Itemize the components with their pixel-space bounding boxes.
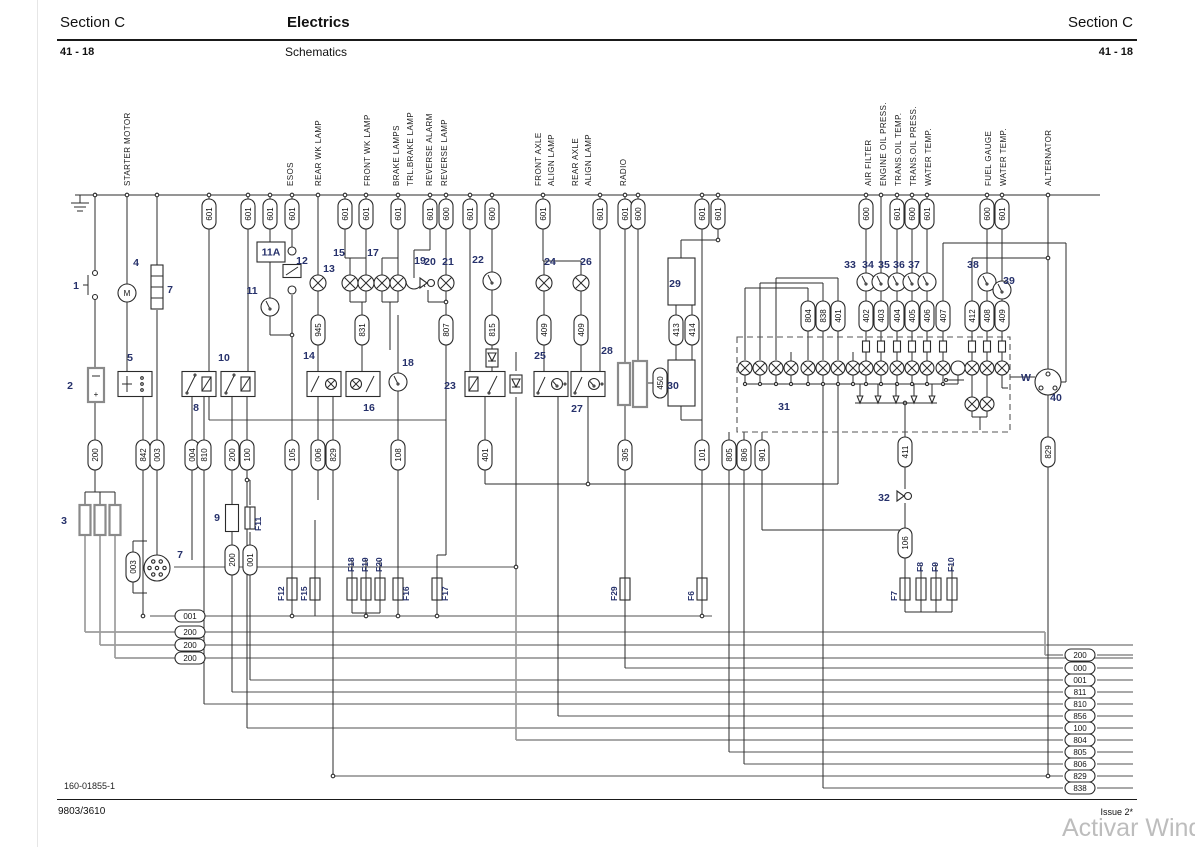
junction-dot — [290, 193, 294, 197]
component-ref: 16 — [363, 402, 375, 414]
connector-pin — [159, 573, 162, 576]
junction-dot — [821, 382, 824, 385]
component-ref: 36 — [893, 259, 905, 271]
wire-number: 600 — [862, 207, 871, 221]
connector-pin — [863, 341, 870, 352]
battery-plus: + — [94, 390, 99, 399]
wire-number: 829 — [1073, 772, 1087, 781]
relay-icon — [194, 374, 196, 376]
switch-icon — [93, 295, 98, 300]
connector-pin — [984, 341, 991, 352]
footer-part-number: 9803/3610 — [58, 806, 105, 817]
relay-icon — [225, 392, 227, 394]
junction-dot — [716, 193, 720, 197]
wire-number: 601 — [596, 207, 605, 221]
resistor-bank-icon — [95, 505, 106, 535]
wire-number: 001 — [183, 612, 197, 621]
wire-number: 806 — [1073, 760, 1087, 769]
component-ref: 34 — [862, 259, 874, 271]
circuit-label: WATER TEMP. — [924, 128, 933, 186]
junction-dot — [268, 193, 272, 197]
wire-number: 100 — [243, 448, 252, 462]
circuit-label: ALTERNATOR — [1044, 130, 1053, 186]
wire-number: 810 — [1073, 700, 1087, 709]
sender-icon — [865, 283, 867, 285]
component-ref: 17 — [367, 247, 379, 259]
junction-dot — [941, 382, 944, 385]
connector-pin — [999, 341, 1006, 352]
junction-dot — [985, 193, 989, 197]
wire-number: 600 — [488, 207, 497, 221]
junction-dot — [207, 193, 211, 197]
connector-pin — [155, 566, 158, 569]
alternator-icon — [1046, 372, 1050, 376]
wire-number: 408 — [983, 309, 992, 323]
junction-dot — [364, 614, 368, 618]
junction-dot — [125, 193, 129, 197]
motor-letter: M — [124, 289, 131, 298]
junction-dot — [468, 193, 472, 197]
wire-number: 001 — [1073, 676, 1087, 685]
wire-number: 404 — [893, 309, 902, 323]
wire-number: 805 — [1073, 748, 1087, 757]
junction-dot — [155, 193, 159, 197]
wire-number: 601 — [998, 207, 1007, 221]
fuse-label: F6 — [686, 591, 696, 601]
circuit-label: WATER TEMP. — [999, 128, 1008, 186]
component-ref: 39 — [1003, 275, 1015, 287]
sender-icon — [986, 283, 988, 285]
junction-dot — [700, 193, 704, 197]
wire-number: 804 — [804, 309, 813, 323]
sender-icon — [896, 283, 898, 285]
component-ref: 23 — [444, 380, 456, 392]
junction-dot — [910, 193, 914, 197]
connector-pin — [878, 341, 885, 352]
fuse-label: F12 — [276, 586, 286, 601]
sender-icon — [872, 273, 890, 291]
indicator-icon — [951, 361, 965, 375]
component-ref: 29 — [669, 278, 681, 290]
switch-gauge-box — [537, 392, 539, 394]
wire-number: 601 — [266, 207, 275, 221]
flasher-icon — [288, 247, 296, 255]
junction-dot — [743, 382, 746, 385]
wire-number: 405 — [908, 309, 917, 323]
manual-page: Section C Electrics Section C 41 - 18 Sc… — [0, 0, 1195, 847]
circuit-label: ALIGN LAMP — [547, 134, 556, 186]
connector-pin — [969, 341, 976, 352]
circuit-label: REAR WK LAMP — [314, 120, 323, 186]
terminal-arrow — [857, 396, 863, 403]
component-ref: 33 — [844, 259, 856, 271]
fuse-label: F20 — [374, 557, 384, 572]
junction-dot — [586, 482, 590, 486]
wire-number: 100 — [1073, 724, 1087, 733]
connector-pin — [148, 566, 151, 569]
wire-number: 001 — [246, 553, 255, 567]
wire-number: 601 — [288, 207, 297, 221]
junction-dot — [925, 382, 928, 385]
component-box — [633, 361, 647, 407]
footer-doc-number: 160-01855-1 — [64, 781, 115, 791]
alternator-icon — [1039, 386, 1043, 390]
wire-number: 601 — [539, 207, 548, 221]
sender-icon — [397, 383, 399, 385]
relay-icon — [186, 392, 188, 394]
wire-number: 601 — [394, 207, 403, 221]
relay-icon — [488, 392, 490, 394]
sender-icon — [880, 283, 882, 285]
component-ref: 11A — [262, 247, 281, 259]
junction-dot — [245, 478, 249, 482]
fuse-label: F17 — [440, 586, 450, 601]
junction-dot — [774, 382, 777, 385]
connector-pin — [152, 573, 155, 576]
circuit-label: FUEL GAUGE — [984, 131, 993, 186]
fuse-label: F29 — [609, 586, 619, 601]
fuse-label: F8 — [915, 562, 925, 572]
wire-number: 831 — [358, 323, 367, 337]
wire-number: 401 — [481, 448, 490, 462]
connector-pin — [152, 560, 155, 563]
component-ref: 7 — [167, 284, 173, 296]
fuse-label: F7 — [889, 591, 899, 601]
junction-dot — [1000, 193, 1004, 197]
wire-number: 200 — [228, 553, 237, 567]
terminal-arrow — [929, 396, 935, 403]
junction-dot — [490, 193, 494, 197]
wire-number: 856 — [1073, 712, 1087, 721]
circuit-label: ENGINE OIL PRESS. — [879, 102, 888, 186]
fuse-label: F10 — [946, 557, 956, 572]
component-ref: 20 — [424, 256, 436, 268]
component-ref: 37 — [908, 259, 920, 271]
circuit-label: REVERSE ALARM — [425, 113, 434, 186]
circuit-label: FRONT AXLE — [534, 132, 543, 186]
wire-number: 810 — [200, 448, 209, 462]
component-ref: 9 — [214, 512, 220, 524]
circuit-label: AIR FILTER — [864, 139, 873, 186]
wire-number: 601 — [466, 207, 475, 221]
wire-number: 829 — [329, 448, 338, 462]
connector-pin — [940, 341, 947, 352]
wire-number: 108 — [394, 448, 403, 462]
circuit-label: BRAKE LAMPS — [392, 125, 401, 186]
junction-dot — [541, 193, 545, 197]
wire-number: 601 — [893, 207, 902, 221]
component-ref: 12 — [296, 255, 308, 267]
junction-dot — [864, 382, 867, 385]
circuit-label: RADIO — [619, 159, 628, 186]
switch-gauge-box — [574, 392, 576, 394]
buzzer-icon — [420, 278, 427, 288]
wire-number: 601 — [621, 207, 630, 221]
wire-number: 815 — [488, 323, 497, 337]
solenoid-icon — [141, 389, 144, 392]
wire-number: 601 — [426, 207, 435, 221]
junction-dot — [758, 382, 761, 385]
component-ref: 24 — [544, 256, 556, 268]
wire-number: 006 — [314, 448, 323, 462]
wire-number: 807 — [442, 323, 451, 337]
wire-number: 601 — [923, 207, 932, 221]
wire-number: 406 — [923, 309, 932, 323]
wire-number: 200 — [183, 654, 197, 663]
component-box — [618, 363, 630, 405]
activation-watermark: Activar Wind — [1062, 814, 1195, 843]
wire-number: 200 — [228, 448, 237, 462]
sender-icon — [593, 385, 595, 387]
junction-dot — [514, 565, 518, 569]
sender-icon — [552, 379, 563, 390]
wire-number: 401 — [834, 309, 843, 323]
solenoid-icon — [141, 377, 144, 380]
connector-pin — [924, 341, 931, 352]
junction-dot — [879, 382, 882, 385]
component-ref: 4 — [133, 257, 139, 269]
wire-number: 003 — [129, 560, 138, 574]
wire-number: 804 — [1073, 736, 1087, 745]
junction-dot — [1046, 193, 1050, 197]
junction-dot — [141, 614, 145, 618]
component-ref: 38 — [967, 259, 979, 271]
switch-icon — [93, 271, 98, 276]
wiring-schematic: +M11A60160160160160160160160160060160060… — [0, 0, 1195, 847]
component-ref: 14 — [303, 350, 315, 362]
resistor-bank-icon — [80, 505, 91, 535]
sender-icon — [1001, 291, 1003, 293]
junction-dot — [700, 614, 704, 618]
circuit-label: ESOS — [286, 162, 295, 186]
footer-rule — [57, 799, 1137, 800]
junction-dot — [435, 614, 439, 618]
circuit-label: REVERSE LAMP — [440, 119, 449, 186]
junction-dot — [598, 193, 602, 197]
circuit-label: TRANS.OIL PRESS. — [909, 106, 918, 186]
switch-gauge-box — [601, 383, 603, 385]
wire-number: 601 — [698, 207, 707, 221]
junction-dot — [895, 193, 899, 197]
sender-icon — [911, 283, 913, 285]
junction-dot — [1046, 256, 1050, 260]
wire-number: 601 — [714, 207, 723, 221]
wire-number: 200 — [183, 641, 197, 650]
component-ref: 2 — [67, 380, 73, 392]
wire-number: 838 — [1073, 784, 1087, 793]
component-ref: 40 — [1050, 392, 1062, 404]
component-ref: W — [1021, 372, 1031, 384]
component-ref: 32 — [878, 492, 890, 504]
sender-icon — [491, 282, 493, 284]
junction-dot — [343, 193, 347, 197]
junction-dot — [836, 382, 839, 385]
junction-dot — [428, 193, 432, 197]
component-ref: 18 — [402, 357, 414, 369]
wire-number: 600 — [983, 207, 992, 221]
junction-dot — [290, 614, 294, 618]
wire-number: 838 — [819, 309, 828, 323]
wire-number: 200 — [1073, 651, 1087, 660]
component-ref: 11 — [246, 285, 257, 297]
wire-number: 945 — [314, 323, 323, 337]
junction-dot — [636, 193, 640, 197]
component-ref: 22 — [472, 254, 484, 266]
junction-dot — [246, 193, 250, 197]
wire-number: 842 — [139, 448, 148, 462]
wire-number: 106 — [901, 536, 910, 550]
wire-number: 811 — [1074, 688, 1087, 697]
component-ref: 21 — [442, 256, 454, 268]
solenoid-icon — [141, 383, 144, 386]
connector-pin — [894, 341, 901, 352]
wire-number: 450 — [656, 376, 665, 390]
junction-dot — [925, 193, 929, 197]
wire-number: 000 — [1073, 664, 1087, 673]
sender-icon — [483, 272, 501, 290]
junction-dot — [806, 382, 809, 385]
buzzer-icon — [428, 280, 435, 287]
component-ref: 25 — [534, 350, 546, 362]
wire-number: 101 — [698, 448, 707, 462]
component-ref: 26 — [580, 256, 592, 268]
circuit-label: STARTER MOTOR — [123, 112, 132, 186]
component-ref: 30 — [667, 380, 679, 392]
component-ref: 8 — [193, 402, 199, 414]
wire-number: 407 — [939, 309, 948, 323]
wire-number: 901 — [758, 448, 767, 462]
junction-dot — [716, 238, 720, 242]
fuse-label: F18 — [346, 557, 356, 572]
component-box — [226, 505, 239, 532]
circuit-label: TRL.BRAKE LAMP — [406, 112, 415, 186]
contact-dot — [945, 379, 948, 382]
wire-number: 601 — [362, 207, 371, 221]
sender-icon — [918, 273, 936, 291]
fuse-label: F9 — [930, 562, 940, 572]
component-ref: 31 — [778, 401, 790, 413]
sender-icon — [589, 379, 600, 390]
wire-number: 409 — [540, 323, 549, 337]
wire-number: 600 — [442, 207, 451, 221]
wire-number: 004 — [188, 448, 197, 462]
fuse-label: F11 — [253, 517, 263, 531]
component-ref: 28 — [601, 345, 613, 357]
junction-dot — [864, 193, 868, 197]
junction-dot — [316, 193, 320, 197]
junction-dot — [1046, 774, 1050, 778]
component-ref: 7 — [177, 549, 183, 561]
junction-dot — [290, 333, 294, 337]
component-ref: 15 — [333, 247, 345, 259]
wire-number: 600 — [908, 207, 917, 221]
sender-icon — [269, 308, 271, 310]
junction-dot — [444, 300, 448, 304]
component-ref: 1 — [73, 280, 79, 292]
connector-pin — [909, 341, 916, 352]
wire-number: 003 — [153, 448, 162, 462]
junction-dot — [331, 774, 335, 778]
fuse-label: F16 — [401, 586, 411, 601]
buzzer-icon — [905, 493, 912, 500]
wire-number: 805 — [725, 448, 734, 462]
circuit-label: ALIGN LAMP — [584, 134, 593, 186]
wire-number: 105 — [288, 448, 297, 462]
junction-dot — [910, 382, 913, 385]
sender-icon — [389, 373, 407, 391]
wire-number: 806 — [740, 448, 749, 462]
terminal-arrow — [875, 396, 881, 403]
sender-icon — [261, 298, 279, 316]
component-ref: 5 — [127, 352, 133, 364]
wire-number: 829 — [1044, 445, 1053, 459]
wire-number: 601 — [205, 207, 214, 221]
component-ref: 3 — [61, 515, 67, 527]
junction-dot — [789, 382, 792, 385]
wire-number: 305 — [621, 448, 630, 462]
circuit-label: TRANS.OIL TEMP. — [894, 113, 903, 186]
flasher-icon — [288, 286, 296, 294]
alternator-icon — [1053, 386, 1057, 390]
sender-icon — [926, 283, 928, 285]
fuse-label: F15 — [299, 586, 309, 601]
wire-number: 412 — [968, 309, 977, 323]
junction-dot — [396, 614, 400, 618]
connector-pin — [159, 560, 162, 563]
junction-dot — [93, 193, 97, 197]
wire-number: 413 — [672, 323, 681, 337]
circuit-label: REAR AXLE — [571, 138, 580, 186]
sender-icon — [556, 385, 558, 387]
wire-number: 200 — [183, 628, 197, 637]
wire-number: 402 — [862, 309, 871, 323]
junction-dot — [851, 382, 854, 385]
wire-number: 409 — [577, 323, 586, 337]
wire-number: 601 — [244, 207, 253, 221]
component-ref: 13 — [323, 263, 335, 275]
junction-dot — [364, 193, 368, 197]
junction-dot — [396, 193, 400, 197]
terminal-arrow — [893, 396, 899, 403]
component-ref: 35 — [878, 259, 890, 271]
wire-number: 403 — [877, 309, 886, 323]
connector-pin — [163, 566, 166, 569]
terminal-arrow — [911, 396, 917, 403]
fuse-label: F19 — [360, 557, 370, 572]
component-ref: 27 — [571, 403, 583, 415]
junction-dot — [444, 193, 448, 197]
resistor-bank-icon — [110, 505, 121, 535]
wire-number: 200 — [91, 448, 100, 462]
junction-dot — [879, 193, 883, 197]
wire-number: 414 — [688, 323, 697, 337]
circuit-label: FRONT WK LAMP — [363, 114, 372, 186]
wire-number: 409 — [998, 309, 1007, 323]
wire-number: 601 — [341, 207, 350, 221]
junction-dot — [623, 193, 627, 197]
relay-icon — [233, 374, 235, 376]
wire-number: 411 — [901, 445, 910, 458]
wire-number: 600 — [634, 207, 643, 221]
buzzer-icon — [897, 491, 904, 501]
switch-gauge-box — [564, 383, 566, 385]
component-ref: 10 — [218, 352, 230, 364]
